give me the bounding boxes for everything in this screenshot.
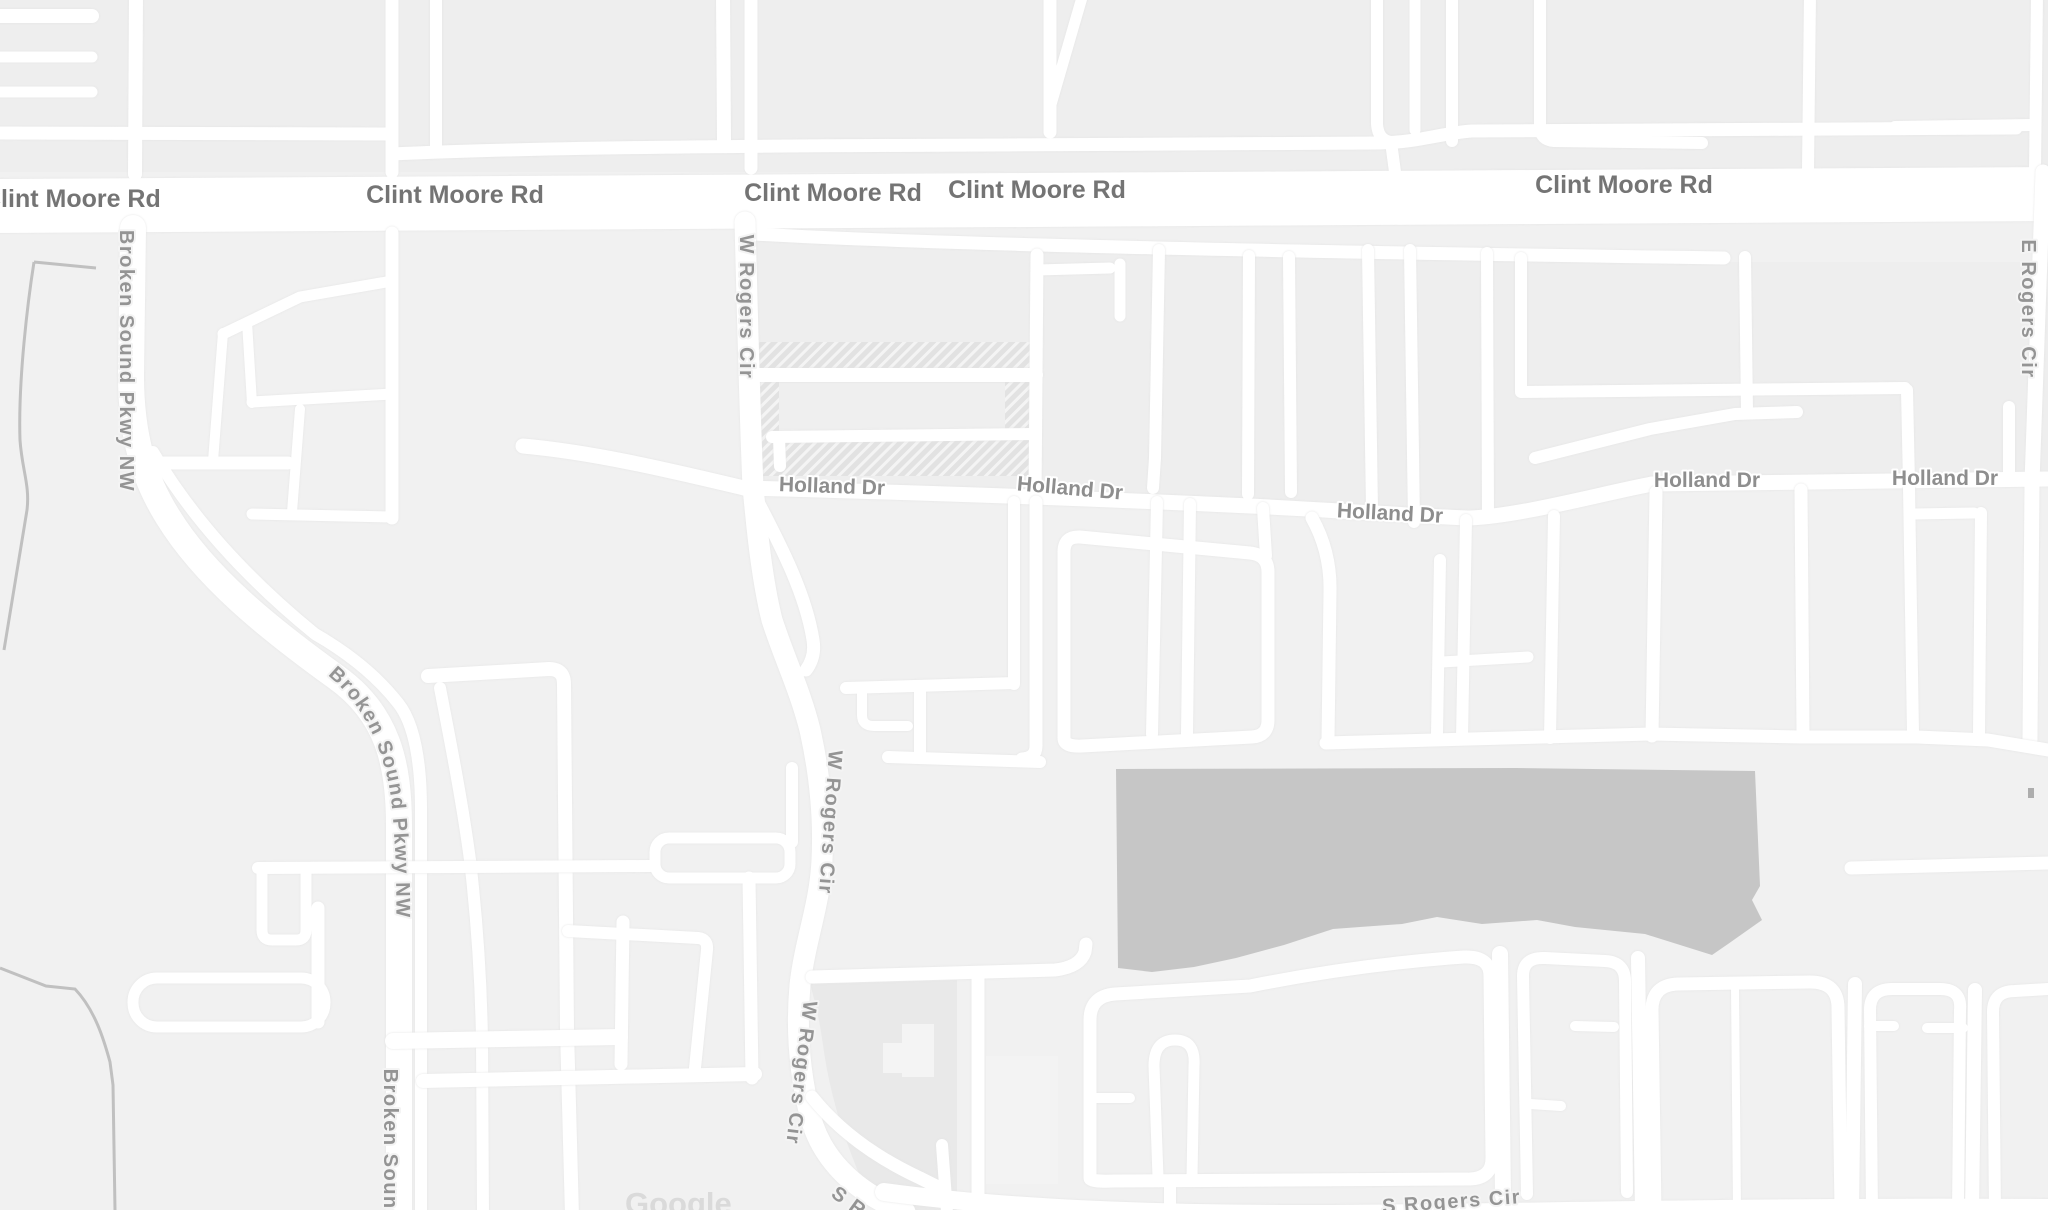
svg-text:W Rogers Cir: W Rogers Cir [735,235,757,380]
svg-text:Clint Moore Rd: Clint Moore Rd [948,176,1126,204]
svg-text:Clint Moore Rd: Clint Moore Rd [1535,171,1713,199]
svg-text:E Rogers Cir: E Rogers Cir [2017,239,2039,378]
svg-text:Holland Dr: Holland Dr [1654,469,1760,492]
svg-text:Holland Dr: Holland Dr [779,473,886,500]
svg-text:Clint Moore Rd: Clint Moore Rd [744,179,922,207]
svg-text:Holland Dr: Holland Dr [1892,467,1998,490]
svg-text:Broken Sound: Broken Sound [379,1069,401,1210]
svg-text:Clint Moore Rd: Clint Moore Rd [0,185,161,213]
svg-text:Google: Google [625,1186,732,1210]
svg-text:Clint Moore Rd: Clint Moore Rd [366,181,544,209]
svg-text:Broken Sound Pkwy NW: Broken Sound Pkwy NW [115,230,137,492]
